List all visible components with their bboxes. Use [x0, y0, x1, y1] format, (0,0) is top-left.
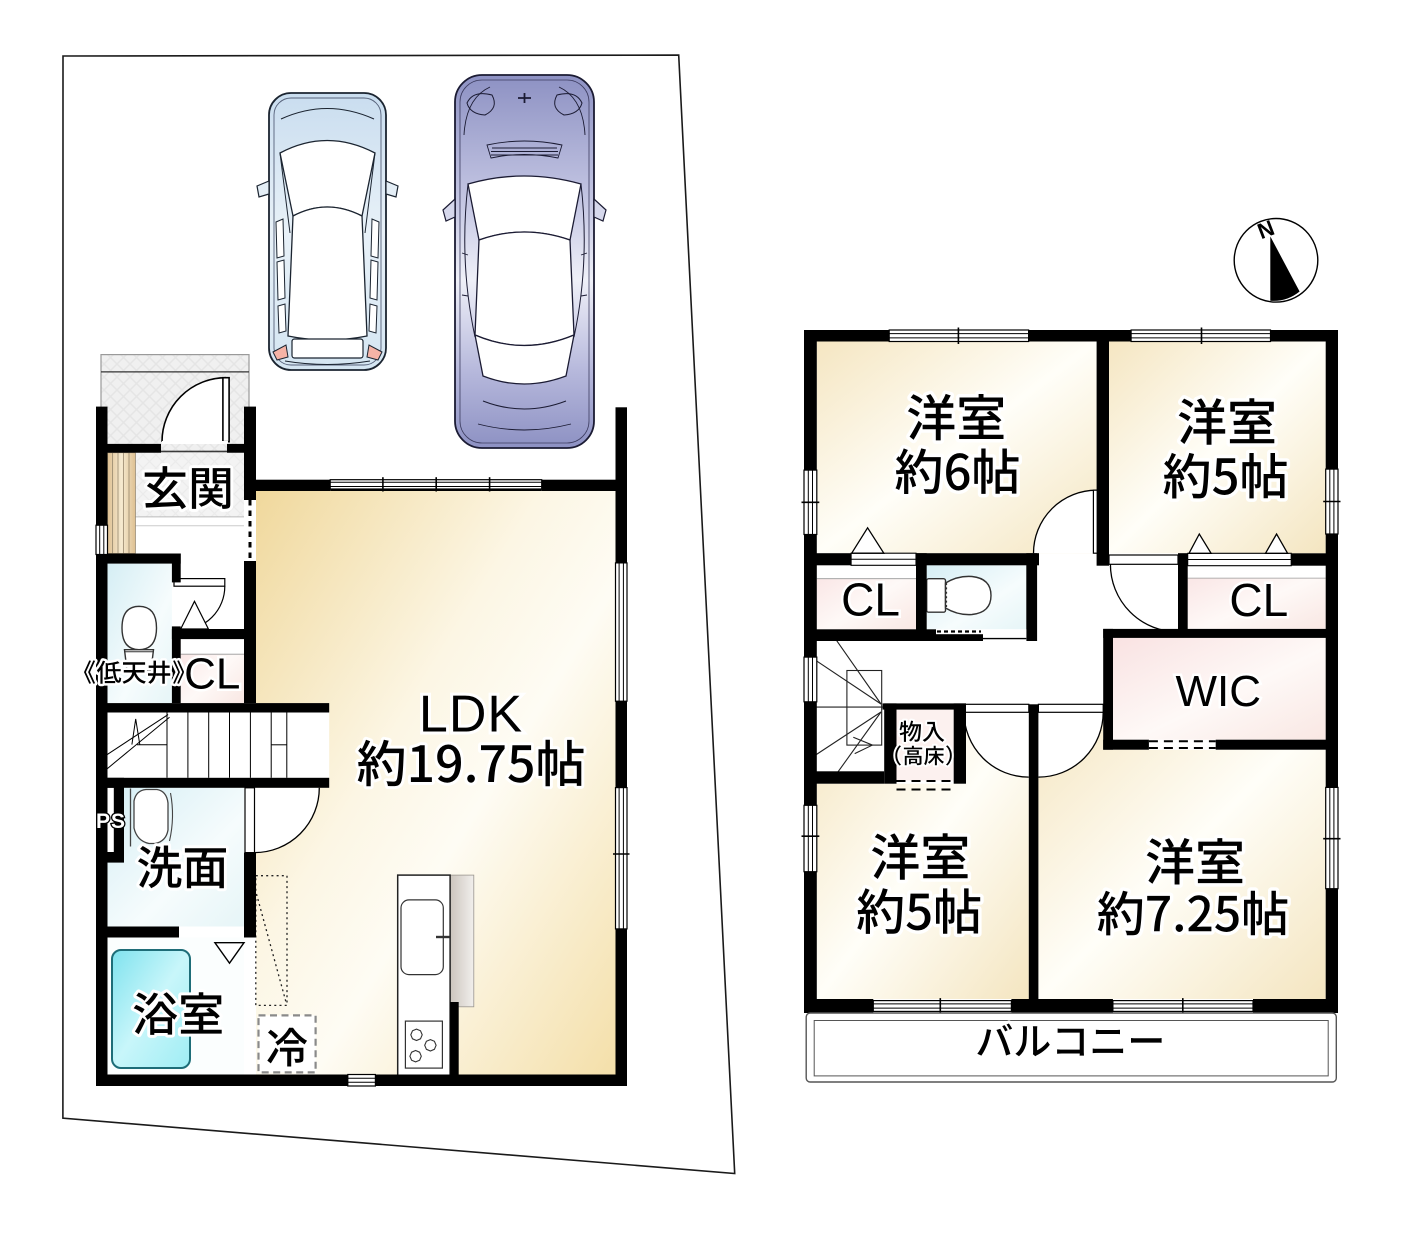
svg-text:WIC: WIC: [1176, 667, 1262, 716]
svg-text:LDK: LDK: [419, 686, 523, 744]
svg-text:CL: CL: [841, 574, 900, 626]
svg-text:CL: CL: [184, 650, 240, 699]
svg-text:PS: PS: [96, 810, 126, 833]
svg-text:CL: CL: [1229, 574, 1288, 626]
